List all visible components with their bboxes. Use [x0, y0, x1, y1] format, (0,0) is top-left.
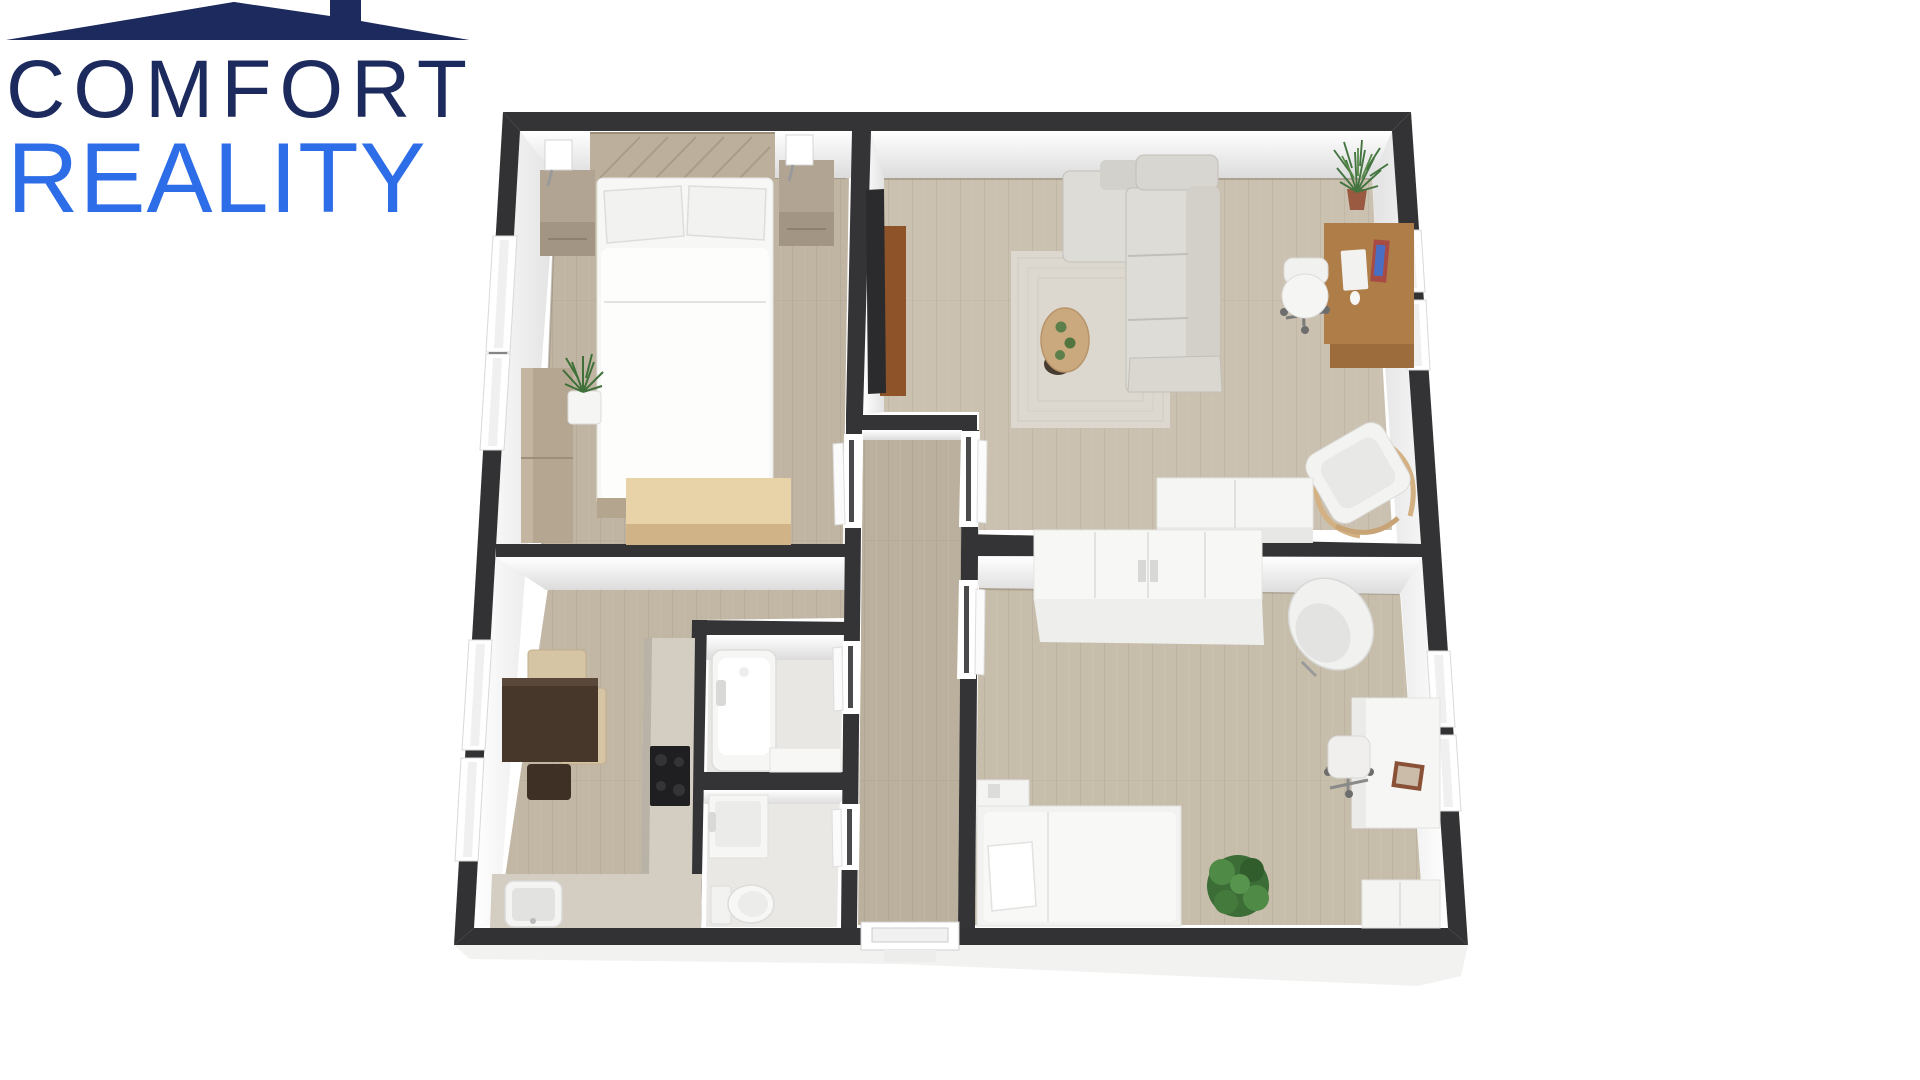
svg-text:REALITY: REALITY — [7, 122, 427, 233]
